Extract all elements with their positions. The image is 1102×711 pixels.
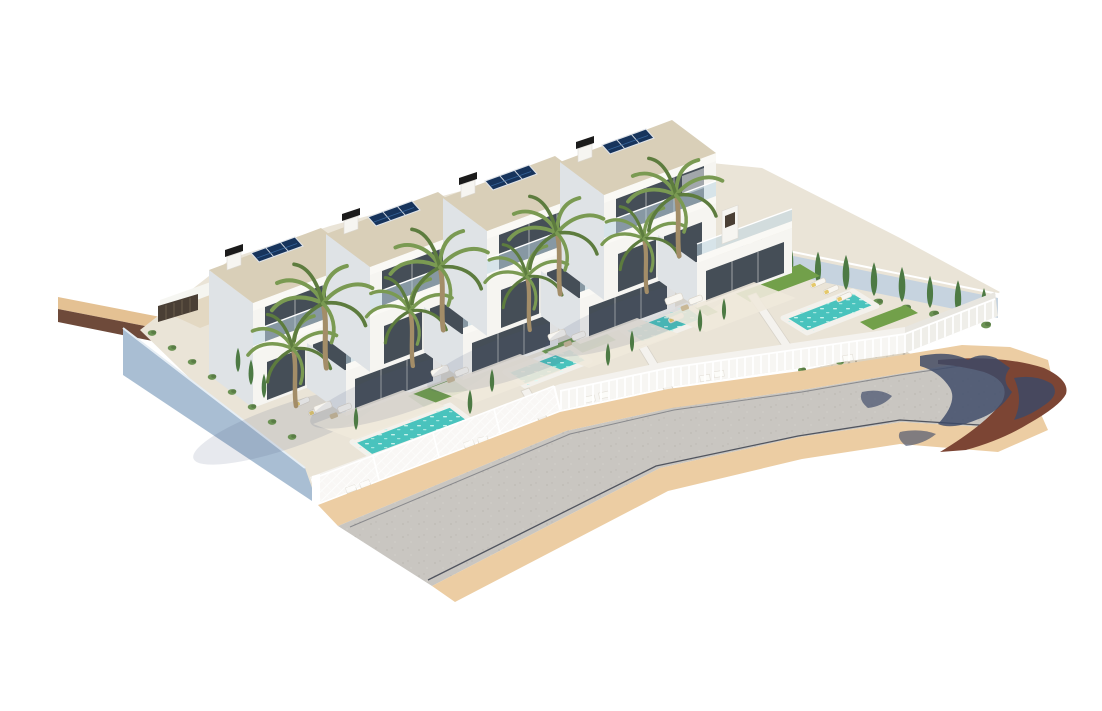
wall-corner-post (312, 474, 320, 507)
render-canvas: Aerial isometric rendering of a resident… (0, 0, 1102, 711)
villa-development-render: Aerial isometric rendering of a resident… (0, 0, 1102, 711)
